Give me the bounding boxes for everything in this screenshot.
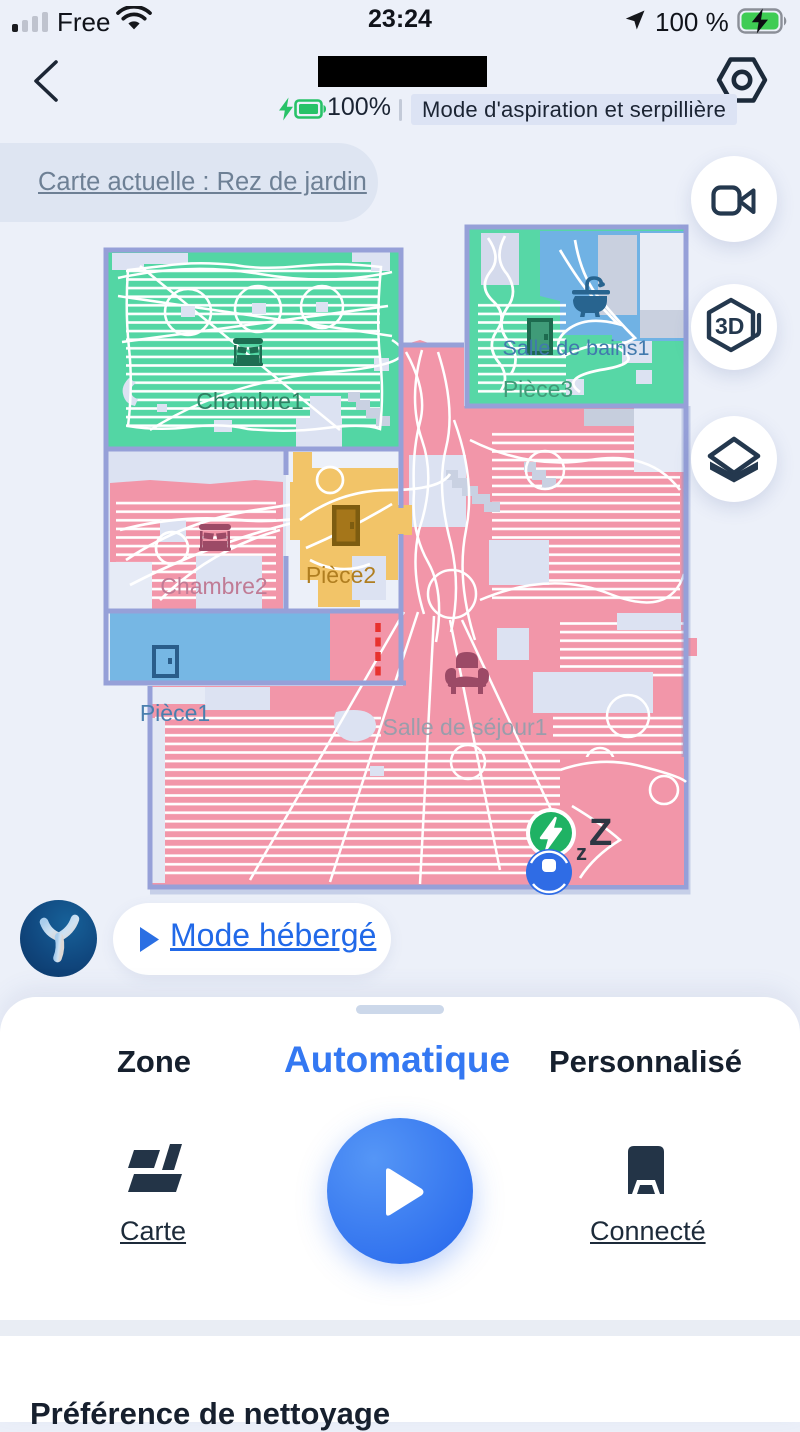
svg-text:Pièce3: Pièce3 bbox=[503, 376, 573, 402]
svg-text:Pièce2: Pièce2 bbox=[306, 562, 376, 588]
svg-text:Pièce1: Pièce1 bbox=[140, 700, 210, 726]
svg-text:Salle de bains1: Salle de bains1 bbox=[502, 336, 649, 360]
svg-text:Salle de séjour1: Salle de séjour1 bbox=[383, 714, 548, 740]
svg-text:Chambre2: Chambre2 bbox=[160, 573, 267, 599]
svg-text:Z: Z bbox=[589, 812, 612, 854]
svg-text:Chambre1: Chambre1 bbox=[196, 388, 303, 414]
svg-text:z: z bbox=[576, 840, 587, 865]
svg-text:3D: 3D bbox=[715, 313, 744, 339]
